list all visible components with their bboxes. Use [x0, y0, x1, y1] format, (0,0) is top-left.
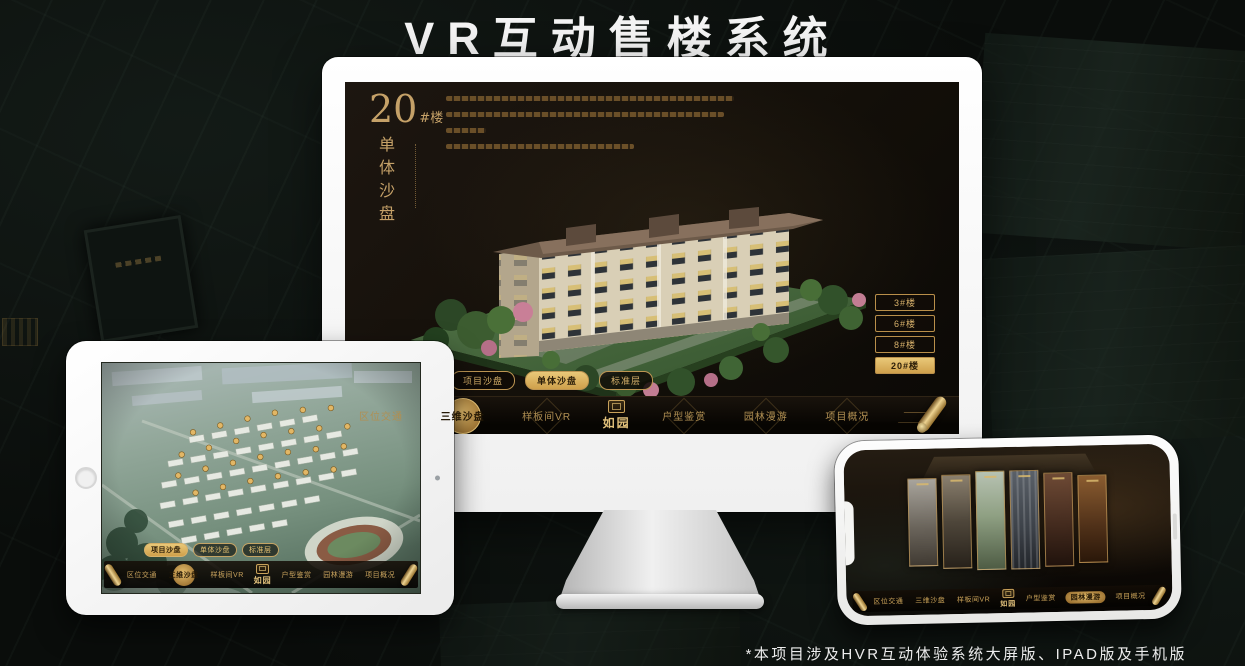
menu-item-project-overview[interactable]: 项目概况 — [363, 568, 397, 582]
background-logo-decor — [2, 318, 38, 346]
menu-item-location[interactable]: 区位交通 — [125, 568, 159, 582]
tablet-subtabs: 项目沙盘 单体沙盘 标准层 — [144, 543, 279, 557]
building-3d-render[interactable] — [381, 152, 891, 403]
building-number-suffix: #楼 — [419, 107, 443, 126]
subtab-project-sandbox[interactable]: 项目沙盘 — [451, 371, 515, 390]
scroll-icon[interactable] — [852, 591, 869, 612]
phone-screen: 区位交通 三维沙盘 样板间VR 如园 户型鉴赏 园林漫游 项目概况 — [843, 444, 1172, 617]
subtab-project-sandbox[interactable]: 项目沙盘 — [144, 543, 188, 557]
menu-item-unit-types[interactable]: 户型鉴赏 — [656, 404, 712, 427]
menu-item-unit-types[interactable]: 户型鉴赏 — [1024, 591, 1058, 604]
menu-item-project-overview[interactable]: 项目概况 — [1113, 590, 1147, 603]
intro-text-line — [446, 128, 486, 133]
gallery-panel-detail[interactable] — [1043, 472, 1074, 567]
menu-item-showroom-vr[interactable]: 样板间VR — [955, 593, 992, 606]
phone-menu-bar: 区位交通 三维沙盘 样板间VR 如园 户型鉴赏 园林漫游 项目概况 — [852, 585, 1166, 613]
gallery-panel-garden[interactable] — [975, 471, 1006, 571]
tablet-frame: 项目沙盘 单体沙盘 标准层 区位交通 三维沙盘 样板间VR 如园 户型鉴赏 园林… — [66, 341, 454, 615]
menu-item-3d-sandbox[interactable]: 三维沙盘 — [167, 568, 201, 582]
menu-item-unit-types[interactable]: 户型鉴赏 — [279, 568, 313, 582]
intro-text-line — [446, 96, 734, 101]
poster-canvas: VR互动售楼系统 20 #楼 单体沙盘 — [0, 0, 1245, 666]
menu-item-showroom-vr[interactable]: 样板间VR — [516, 404, 577, 427]
aerial-masterplan-render[interactable] — [102, 363, 420, 593]
menu-item-3d-sandbox[interactable]: 三维沙盘 — [913, 594, 947, 607]
intro-text-line — [446, 112, 724, 117]
seal-icon — [1002, 588, 1014, 597]
scroll-icon[interactable] — [399, 562, 419, 587]
brand-logo: 如园 — [254, 564, 272, 586]
seal-icon — [608, 400, 625, 413]
intro-text-line — [446, 144, 634, 149]
scroll-icon[interactable] — [1151, 585, 1167, 606]
tablet-screen: 项目沙盘 单体沙盘 标准层 区位交通 三维沙盘 样板间VR 如园 户型鉴赏 园林… — [102, 363, 420, 593]
subtab-standard-floor[interactable]: 标准层 — [599, 371, 653, 390]
intro-paragraph-blurred — [446, 96, 746, 160]
gallery-panel-shelf[interactable] — [1077, 474, 1108, 563]
menu-item-garden-tour[interactable]: 园林漫游 — [321, 568, 355, 582]
menu-item-location[interactable]: 区位交通 — [871, 595, 905, 608]
scroll-icon[interactable] — [103, 562, 123, 587]
phone-side-slot — [1173, 513, 1178, 539]
floor-selector: 3#楼 6#楼 8#楼 20#楼 — [875, 294, 935, 374]
menu-item-garden-tour[interactable]: 园林漫游 — [738, 404, 794, 427]
menu-item-garden-tour[interactable]: 园林漫游 — [1066, 590, 1106, 603]
menu-item-showroom-vr[interactable]: 样板间VR — [209, 568, 246, 582]
gallery-panel-interior[interactable] — [907, 478, 938, 567]
tablet-menu-bar: 区位交通 三维沙盘 样板间VR 如园 户型鉴赏 园林漫游 项目概况 — [104, 561, 418, 588]
scroll-icon[interactable] — [901, 398, 947, 434]
floor-button-6[interactable]: 6#楼 — [875, 315, 935, 332]
seal-icon — [256, 564, 269, 574]
floor-button-20[interactable]: 20#楼 — [875, 357, 935, 374]
subtab-single-sandbox[interactable]: 单体沙盘 — [193, 543, 237, 557]
subtab-standard-floor[interactable]: 标准层 — [242, 543, 279, 557]
gallery-panel-building[interactable] — [1009, 470, 1040, 570]
building-number: 20 — [369, 90, 417, 128]
menu-item-project-overview[interactable]: 项目概况 — [819, 404, 875, 427]
home-button[interactable] — [75, 467, 97, 489]
gallery-panel-kitchen[interactable] — [941, 474, 972, 569]
subtab-single-sandbox[interactable]: 单体沙盘 — [525, 371, 589, 390]
monitor-stand-base — [556, 594, 764, 609]
scene-gallery — [907, 468, 1108, 571]
brand-logo: 如园 — [1000, 588, 1016, 608]
phone-frame: 区位交通 三维沙盘 样板间VR 如园 户型鉴赏 园林漫游 项目概况 — [834, 434, 1182, 625]
phone-notch — [844, 501, 854, 565]
footnote-text: *本项目涉及HVR互动体验系统大屏版、IPAD版及手机版 — [746, 643, 1187, 664]
brand-logo: 如园 — [603, 400, 631, 431]
floor-button-8[interactable]: 8#楼 — [875, 336, 935, 353]
sandbox-subtabs: 项目沙盘 单体沙盘 标准层 — [451, 371, 653, 390]
wall-plaque-decor — [84, 215, 199, 343]
camera-dot — [435, 476, 440, 481]
background-photo-decor — [983, 245, 1245, 448]
floor-button-3[interactable]: 3#楼 — [875, 294, 935, 311]
